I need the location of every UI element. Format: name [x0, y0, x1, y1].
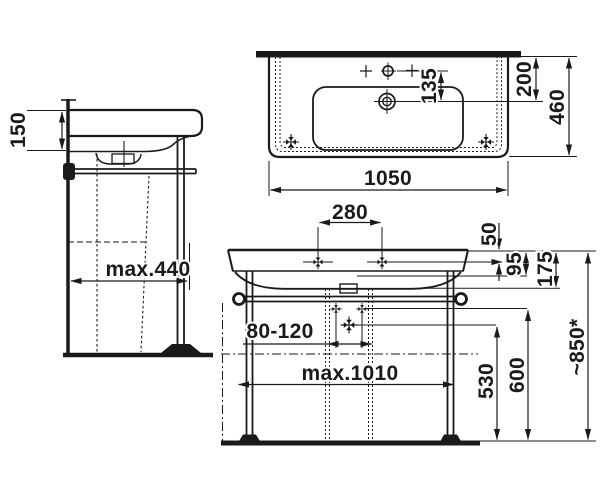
leg-foot-side: [161, 344, 201, 353]
dim-1050: 1050: [364, 167, 412, 190]
technical-drawing-sheet: 150 max.440 135 200: [0, 0, 600, 500]
wall-edge-bar: [256, 51, 521, 58]
dim-850: ~850*: [566, 318, 589, 376]
tap-position-mark-left: [360, 65, 372, 78]
rail-knob-left: [234, 294, 245, 305]
dim-530: 530: [475, 363, 498, 399]
dim-80-120: 80-120: [246, 320, 313, 343]
rail-wall-bracket: [63, 163, 75, 180]
dim-200: 200: [513, 61, 536, 97]
dim-280: 280: [332, 201, 368, 224]
waste-connection-icon: [341, 317, 358, 334]
basin-underside: [235, 272, 461, 289]
top-view: 135 200 460 1050: [256, 51, 577, 196]
washbasin-dimension-drawing: 150 max.440 135 200: [0, 0, 600, 500]
dim-175: 175: [534, 251, 557, 287]
dim-135: 135: [418, 68, 441, 104]
dim-460: 460: [546, 89, 569, 125]
side-view: 150 max.440: [7, 99, 213, 356]
dim-95: 95: [503, 252, 526, 276]
overflow-slot-side: [112, 154, 134, 164]
dim-150: 150: [7, 112, 30, 148]
basin-profile: [68, 110, 202, 136]
front-view: 280 50 95 175 80-120 max.1010 530 600 ~8…: [221, 201, 596, 443]
dim-max-1010: max.1010: [302, 362, 399, 385]
dim-600: 600: [506, 357, 529, 393]
dim-max-440: max.440: [105, 258, 190, 281]
rail-knob-right: [456, 294, 467, 305]
dim-50: 50: [478, 222, 501, 246]
